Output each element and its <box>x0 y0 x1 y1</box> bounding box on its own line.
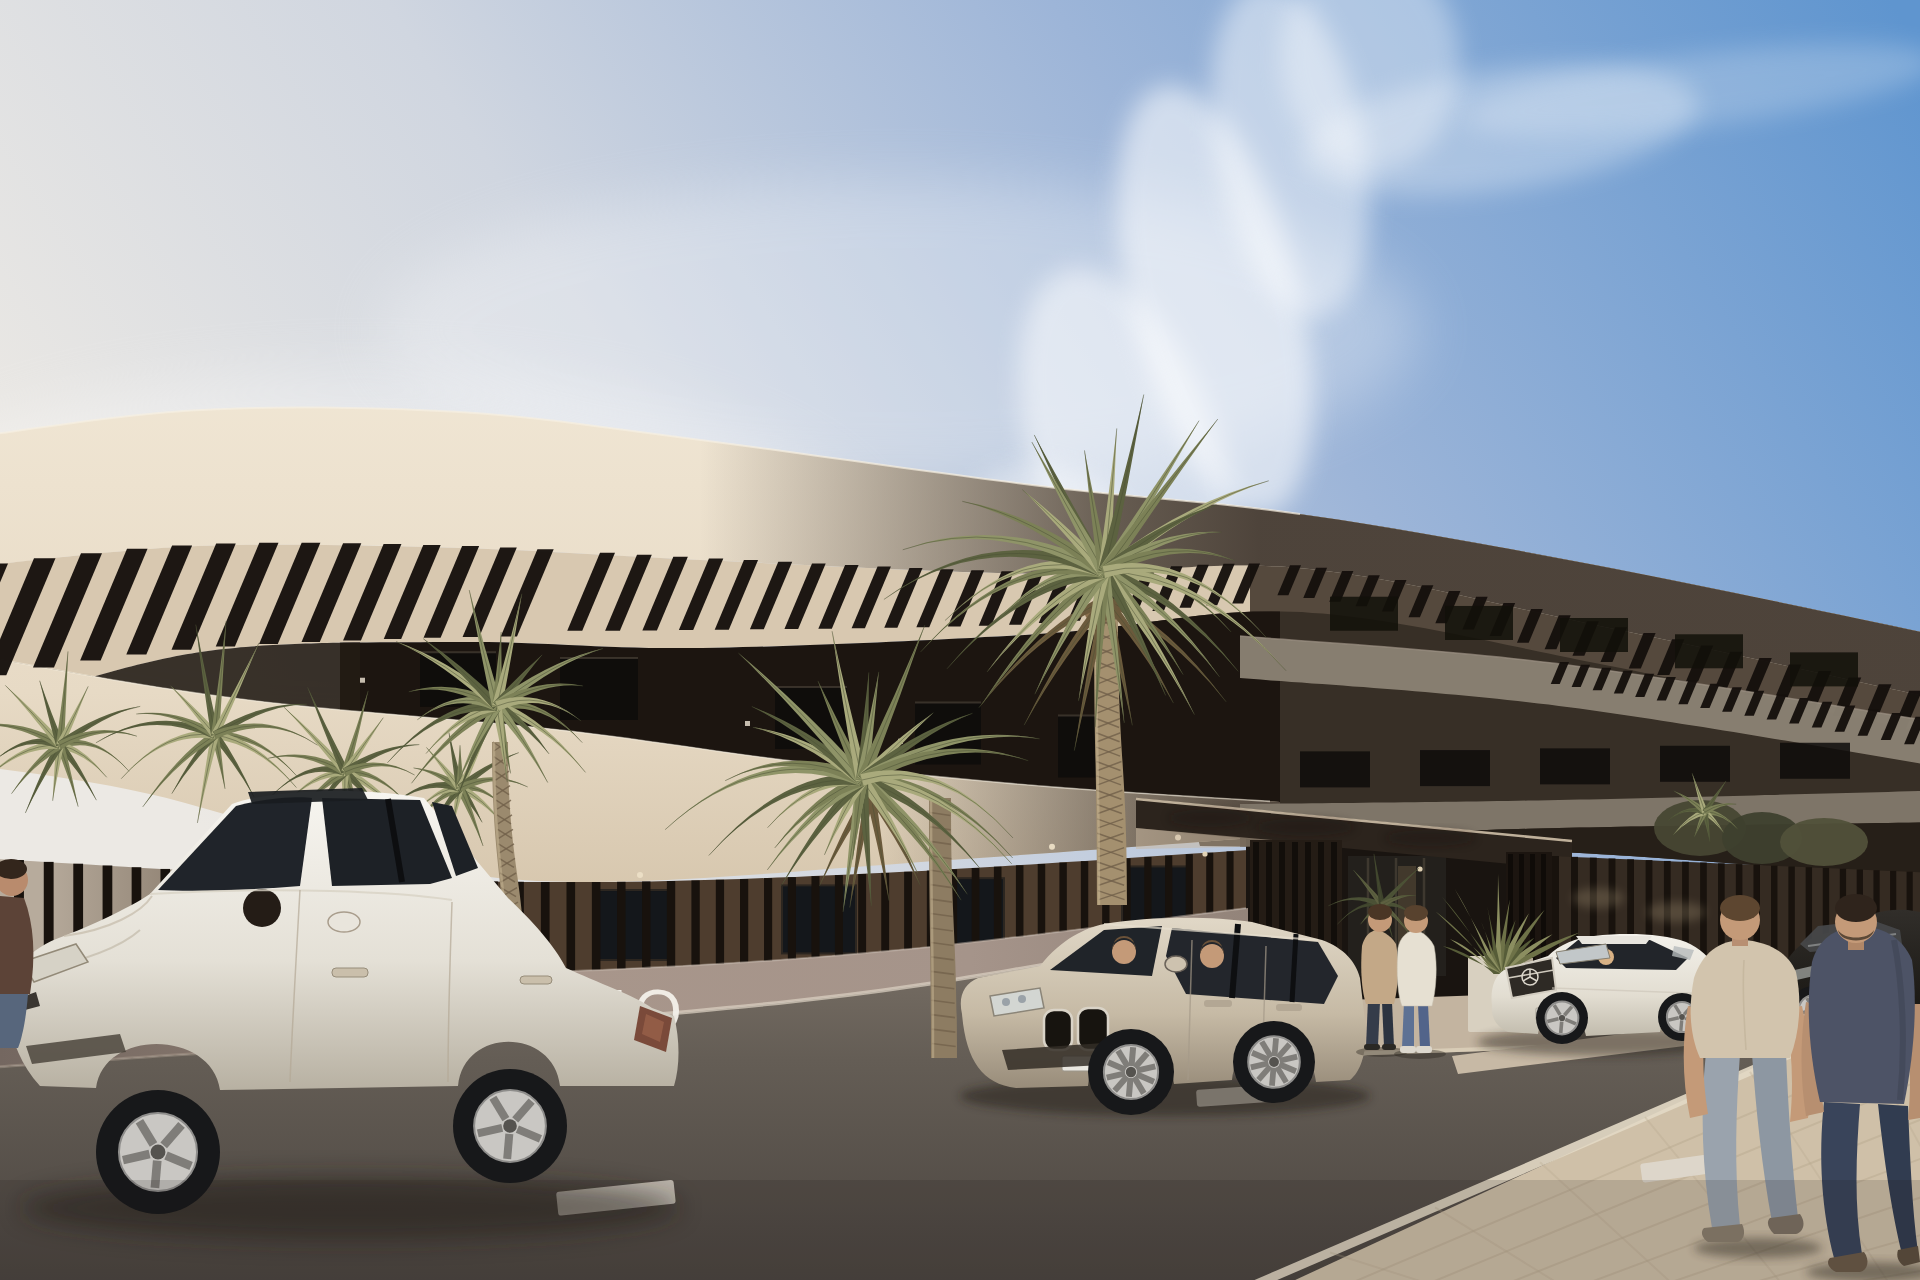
vignette <box>0 1180 1920 1280</box>
ground-window <box>598 890 668 960</box>
architectural-render: TO <box>0 0 1920 1280</box>
window <box>560 658 638 720</box>
